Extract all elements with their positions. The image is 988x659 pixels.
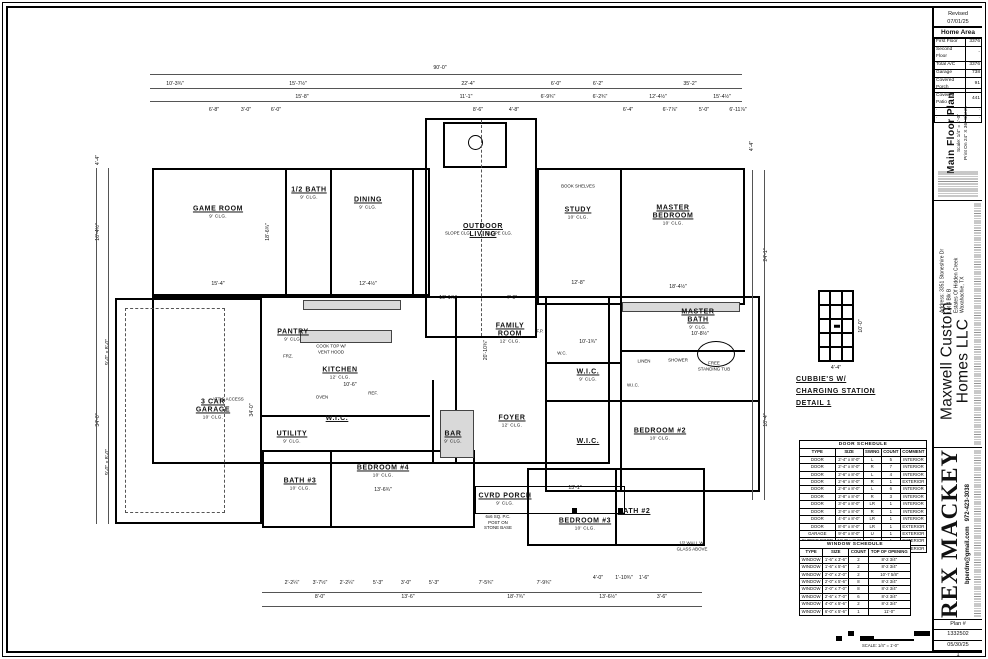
dimension-label: 3'-6" <box>657 594 667 600</box>
plan-note: REF. <box>368 390 378 396</box>
dimension-line <box>764 170 765 500</box>
dimension-label: 4'-8" <box>509 107 519 113</box>
room-name: BEDROOM #3 <box>559 517 611 525</box>
room-name: W.I.C. <box>326 415 349 423</box>
room-name: UTILITY <box>277 430 308 438</box>
room-label-study: STUDY10' CLG. <box>565 206 592 219</box>
ceiling-height-note: 10' CLG. <box>559 526 611 531</box>
cubby-cell <box>842 333 853 347</box>
sheet-print-note: Print On 24" X 36" Sheet. <box>964 83 971 183</box>
dimension-label: 8'-0" <box>315 594 325 600</box>
schedule-caption-row: WINDOW SCHEDULE <box>800 541 911 549</box>
room-label-bedroom-3: BEDROOM #310' CLG. <box>559 517 611 530</box>
dimension-label: 20'-10¾" <box>483 340 489 360</box>
schedule-row: WINDOW1'-6" x 5'-6"28'-2 3/4" <box>800 564 911 571</box>
room-label-game-room: GAME ROOM9' CLG. <box>193 205 243 218</box>
sheet-number: 1 <box>934 651 982 659</box>
room-name: BAR <box>444 430 462 438</box>
sheet-title: Main Floor Plan <box>946 83 957 183</box>
dimension-label: 3'-0" <box>401 580 411 586</box>
dimension-label: 34'-0" <box>249 403 255 416</box>
schedule-row: DOOR3'-0" x 8'-0"LR1INTERIOR <box>800 501 927 508</box>
room-name: KITCHEN <box>322 366 357 374</box>
cubby-cell <box>842 347 853 361</box>
schedule-row: WINDOW2'-0" x 7'-0"88'-2 3/4" <box>800 586 911 593</box>
dimension-label: 11'-1" <box>460 94 473 100</box>
room-name: W.I.C. <box>577 438 600 446</box>
plan-note: OVEN <box>316 394 328 400</box>
room-name: FOYER <box>498 414 525 422</box>
room-label-w-i-c: W.I.C. <box>577 438 600 446</box>
room-name: MASTERBATH <box>681 308 714 324</box>
cubby-cell <box>842 291 853 305</box>
cubby-cell <box>830 347 841 361</box>
schedule-row: DOOR2'-8" x 8'-0"R3INTERIOR <box>800 493 927 500</box>
dimension-line <box>96 168 97 524</box>
dimension-label: 10'-3¾" <box>166 81 184 87</box>
room-name: PANTRY <box>277 328 309 336</box>
room-label-foyer: FOYER12' CLG. <box>498 414 525 427</box>
plan-note: 1/2 WALL W/ GLASS ABOVE <box>675 541 709 552</box>
room-label-bath-3: BATH #310' CLG. <box>284 477 317 490</box>
dimension-label: 15'-7½" <box>289 81 307 87</box>
schedule-row: WINDOW4'-0" x 5'-6"28'-2 3/4" <box>800 601 911 608</box>
dimension-label: 15'-4" <box>211 281 224 287</box>
dimension-label: 90'-0" <box>433 65 446 71</box>
room-name: BEDROOM #2 <box>634 427 686 435</box>
cubby-cell <box>819 305 830 319</box>
fine-print-text <box>974 450 981 617</box>
ceiling-height-note: 9' CLG. <box>291 195 326 200</box>
dimension-label: 13'-6½" <box>599 594 617 600</box>
plan-note: F.P. <box>537 328 544 334</box>
schedule-row: DOOR4'-0" x 8'-0"LR1INTERIOR <box>800 516 927 523</box>
partition-wall <box>330 168 332 296</box>
dimension-line <box>262 592 702 593</box>
cubbies-detail-drawing <box>818 290 854 362</box>
schedule-row: WINDOW1'-6" x 3'-6"28'-2 3/4" <box>800 556 911 563</box>
cubby-cell <box>842 319 853 333</box>
dimension-label: 12'-4½" <box>649 94 667 100</box>
ceiling-height-note: 9' CLG. <box>681 325 714 330</box>
designer-email: bperdm@gmail.com <box>965 526 971 584</box>
dimension-label: 6'-7⅞" <box>663 107 678 113</box>
dimension-line <box>108 168 109 524</box>
dimension-label: 7'-5¾" <box>479 580 494 586</box>
detail-height-dim: 10'-0" <box>858 319 864 332</box>
room-name: GAME ROOM <box>193 205 243 213</box>
home-area-box: Home Area First Floor3376Second Floor-To… <box>934 27 982 89</box>
dimension-label: 5'-3" <box>373 580 383 586</box>
schedule-header-row: TYPESIZESWINGCOUNTCOMMENT <box>800 449 927 456</box>
dimension-line <box>262 606 702 607</box>
plan-note: SLOPE CLG. <box>445 230 471 236</box>
builder-box: Address: 3351 Stoneshire Dr Lot 4 Blk B … <box>934 201 982 448</box>
outdoor-living-centerline <box>481 120 482 336</box>
detail-title-line2: CHARGING STATION <box>796 388 875 395</box>
room-name: W.I.C. <box>577 368 600 376</box>
schedule-row: DOOR8'-0" x 8'-0"LR1EXTERIOR <box>800 523 927 530</box>
room-label-w-i-c: W.I.C.9' CLG. <box>577 368 600 381</box>
schedule-row: WINDOW6'-0" x 5'-6"111'-0" <box>800 608 911 615</box>
ceiling-height-note: 12' CLG. <box>496 339 525 344</box>
dimension-label: 7'-9¾" <box>537 580 552 586</box>
partition-wall <box>620 296 622 492</box>
dimension-line <box>150 88 742 89</box>
room-label-cvrd-porch: CVRD PORCH9' CLG. <box>478 492 531 505</box>
home-area-row: Second Floor- <box>935 46 982 61</box>
dimension-label: 1'-6" <box>639 575 649 581</box>
door-schedule-table: DOOR SCHEDULETYPESIZESWINGCOUNTCOMMENTDO… <box>799 440 927 553</box>
schedule-row: WINDOW2'-6" x 7'-0"68'-2 3/4" <box>800 593 911 600</box>
plan-date: 05/30/25 <box>934 641 982 651</box>
ceiling-height-note: 9' CLG. <box>577 377 600 382</box>
schedule-row: DOOR2'-8" x 8'-0"L6INTERIOR <box>800 486 927 493</box>
cabinet-fill <box>303 300 401 310</box>
partition-wall <box>285 168 287 296</box>
plan-note: SLOPE CLG. <box>486 230 512 236</box>
window-schedule-table: WINDOW SCHEDULETYPESIZECOUNTTOP OF OPENI… <box>799 540 911 616</box>
dimension-label: 10'-8½" <box>691 331 709 337</box>
dimension-label: 15'-8" <box>295 94 308 100</box>
cubby-cell <box>819 347 830 361</box>
wall <box>545 296 760 492</box>
builder-name: Maxwell Custom Homes LLC <box>939 281 972 441</box>
detail-title-line3: DETAIL 1 <box>796 400 831 407</box>
schedule-row: DOOR2'-6" x 8'-0"R1EXTERIOR <box>800 478 927 485</box>
schedule-row: WINDOW2'-0" x 2'-0"210'-7 5/8" <box>800 571 911 578</box>
room-name: FAMILYROOM <box>496 322 525 338</box>
ceiling-height-note: 10' CLG. <box>284 486 317 491</box>
ceiling-height-note: 9' CLG. <box>354 205 382 210</box>
scale-bar-label: SCALE: 1/4" = 1'-0" <box>862 643 898 648</box>
plan-note: LINEN <box>638 358 651 364</box>
dimension-label: 6'-2¾" <box>593 94 608 100</box>
schedule-row: GARAGE9'-0" x 8'-0"U1EXTERIOR <box>800 531 927 538</box>
dimension-label: 18'-7¾" <box>507 594 525 600</box>
cubby-cell <box>842 305 853 319</box>
room-name: STUDY <box>565 206 592 214</box>
charging-outlet-dot <box>837 325 840 328</box>
room-name: DINING <box>354 196 382 204</box>
partition-wall <box>545 400 760 402</box>
schedule-row: DOOR3'-0" x 8'-0"R1INTERIOR <box>800 508 927 515</box>
partition-wall <box>620 170 622 303</box>
schedule-row: DOOR2'-4" x 8'-0"R7INTERIOR <box>800 464 927 471</box>
room-label-w-i-c: W.I.C. <box>326 415 349 423</box>
dimension-line <box>150 101 742 102</box>
partition-wall <box>615 468 617 546</box>
ceiling-height-note: 10' CLG. <box>357 473 409 478</box>
dimension-label: 5'-3" <box>429 580 439 586</box>
revised-date: 07/01/25 <box>947 19 968 25</box>
plan-note: BOOK SHELVES <box>561 183 595 189</box>
dimension-label: 3'-7½" <box>313 580 328 586</box>
dimension-label: 6'-0" <box>271 107 281 113</box>
dimension-label: 22'-4" <box>461 81 474 87</box>
dimension-label: 6'-9¾" <box>541 94 556 100</box>
ceiling-height-note: 10' CLG. <box>565 215 592 220</box>
plan-number-label: Plan # <box>934 620 982 630</box>
dimension-label: 13'-6" <box>401 594 414 600</box>
title-block-strip: Revised 07/01/25 Home Area First Floor33… <box>932 8 982 651</box>
room-label-kitchen: KITCHEN12' CLG. <box>322 366 357 379</box>
designer-phone: 972-423-3038 <box>965 484 971 521</box>
cabinet-fill <box>300 330 392 343</box>
partition-wall <box>412 168 414 296</box>
dimension-label: 6'-11⅞" <box>729 107 746 113</box>
garage-slab-dashed <box>125 308 225 513</box>
cubby-cell <box>819 291 830 305</box>
dimension-label: 2'-2¼" <box>285 580 300 586</box>
room-label-dining: DINING9' CLG. <box>354 196 382 209</box>
ceiling-height-note: 10' CLG. <box>653 221 694 226</box>
ceiling-height-note: 12' CLG. <box>322 375 357 380</box>
dimension-label: 6'-0" <box>551 81 561 87</box>
home-area-row: First Floor3376 <box>935 39 982 47</box>
ceiling-height-note: 10' CLG. <box>634 436 686 441</box>
sheet-scale: Scale: 1/4" = 1'-0" <box>957 83 964 183</box>
sheet-title-box: Main Floor Plan Scale: 1/4" = 1'-0" Prin… <box>934 89 982 201</box>
partition-wall <box>330 450 332 528</box>
dimension-label: 35'-2" <box>683 81 696 87</box>
dimension-label: 6'-8" <box>209 107 219 113</box>
room-name: BEDROOM #4 <box>357 464 409 472</box>
dimension-label: 4'-4" <box>95 155 101 165</box>
dimension-label: 12'-4½" <box>359 281 377 287</box>
designer-name: REX MACKEY <box>937 450 963 618</box>
dimension-label: 18'-4½" <box>669 284 687 290</box>
dimension-label: 8'-6" <box>473 107 483 113</box>
dimension-label: 10'-6" <box>343 382 356 388</box>
room-name: BATH #3 <box>284 477 317 485</box>
cubby-cell <box>819 319 830 333</box>
plan-note: W.I.C. <box>627 382 639 388</box>
home-area-row: Garage738 <box>935 69 982 77</box>
revision-box: Revised 07/01/25 <box>934 8 982 27</box>
room-name: 1/2 BATH <box>291 186 326 194</box>
dimension-label: 10'-1¾" <box>579 339 597 345</box>
room-label-utility: UTILITY9' CLG. <box>277 430 308 443</box>
schedule-caption-row: DOOR SCHEDULE <box>800 441 927 449</box>
plan-number-box: Plan # 1332502 05/30/25 1 <box>934 620 982 651</box>
dimension-label: 6'-4" <box>623 107 633 113</box>
revised-label: Revised <box>948 11 968 17</box>
dimension-label: 5'-0" <box>699 107 709 113</box>
plan-note: W.C. <box>557 350 567 356</box>
cubby-cell <box>830 319 841 333</box>
room-label-bar: BAR9' CLG. <box>444 430 462 443</box>
schedule-row: WINDOW2'-0" x 5'-6"88'-2 3/4" <box>800 578 911 585</box>
home-area-title: Home Area <box>934 27 982 38</box>
ceiling-height-note: 9' CLG. <box>277 337 309 342</box>
plan-sheet: GAME ROOM9' CLG.1/2 BATH9' CLG.DINING9' … <box>0 0 988 659</box>
detail-width-dim: 4'-4" <box>831 365 841 371</box>
ceiling-height-note: 9' CLG. <box>193 214 243 219</box>
dimension-label: 13'-1" <box>568 485 581 491</box>
schedule-row: DOOR2'-4" x 8'-0"L5INTERIOR <box>800 456 927 463</box>
fine-print-text <box>974 203 981 445</box>
dimension-label: 18'-6¾" <box>265 223 271 241</box>
designer-box: REX MACKEY bperdm@gmail.com 972-423-3038 <box>934 448 982 620</box>
room-name: CVRD PORCH <box>478 492 531 500</box>
room-label-bedroom-2: BEDROOM #210' CLG. <box>634 427 686 440</box>
partition-wall <box>545 362 620 364</box>
dimension-label: 10'-1⅞" <box>439 295 457 301</box>
plan-note: SHOWER <box>668 357 688 363</box>
dimension-label: 4'-0" <box>593 575 603 581</box>
ceiling-height-note: 9' CLG. <box>277 439 308 444</box>
cubby-cell <box>830 291 841 305</box>
ceiling-height-note: 9' CLG. <box>444 439 462 444</box>
dimension-label: 2'-2¼" <box>340 580 355 586</box>
dimension-label: 7'-0" <box>507 295 517 301</box>
room-label-1-2-bath: 1/2 BATH9' CLG. <box>291 186 326 199</box>
room-label-family-room: FAMILYROOM12' CLG. <box>496 322 525 343</box>
dimension-label: 13'-6¾" <box>374 487 392 493</box>
dimension-label: 12'-8" <box>571 280 584 286</box>
dimension-label: 1'-10¾" <box>615 575 633 581</box>
cubby-cell <box>830 305 841 319</box>
freestanding-tub-icon <box>697 341 735 367</box>
home-area-row: Total A/C3376 <box>935 61 982 69</box>
room-name: MASTERBEDROOM <box>653 204 694 220</box>
cubby-cell <box>819 333 830 347</box>
plan-number: 1332502 <box>934 630 982 640</box>
porch-post <box>618 508 623 513</box>
room-label-master-bath: MASTERBATH9' CLG. <box>681 308 714 329</box>
dimension-label: 4'-4" <box>749 141 755 151</box>
partition-wall <box>432 380 434 464</box>
room-label-master-bedroom: MASTERBEDROOM10' CLG. <box>653 204 694 225</box>
porch-post <box>572 508 577 513</box>
ceiling-height-note: 12' CLG. <box>498 423 525 428</box>
schedule-row: DOOR2'-6" x 8'-0"L4INTERIOR <box>800 471 927 478</box>
ceiling-height-note: 9' CLG. <box>478 501 531 506</box>
detail-title-line1: CUBBIE'S W/ <box>796 376 846 383</box>
cubby-cell <box>830 333 841 347</box>
plan-note: COOK TOP W/ VENT HOOD <box>314 344 348 355</box>
dimension-label: 6'-2" <box>593 81 603 87</box>
room-label-bedroom-4: BEDROOM #410' CLG. <box>357 464 409 477</box>
plan-note: 6x6 SQ. P.C. POST ON STONE BASE <box>481 514 515 531</box>
dimension-line <box>150 74 742 75</box>
dimension-label: 15'-4½" <box>713 94 731 100</box>
room-label-pantry: PANTRY9' CLG. <box>277 328 309 341</box>
plan-note: FRZ. <box>283 353 293 359</box>
dimension-label: 3'-0" <box>241 107 251 113</box>
schedule-header-row: TYPESIZECOUNTTOP OF OPENING <box>800 549 911 556</box>
dimension-line <box>752 170 753 500</box>
